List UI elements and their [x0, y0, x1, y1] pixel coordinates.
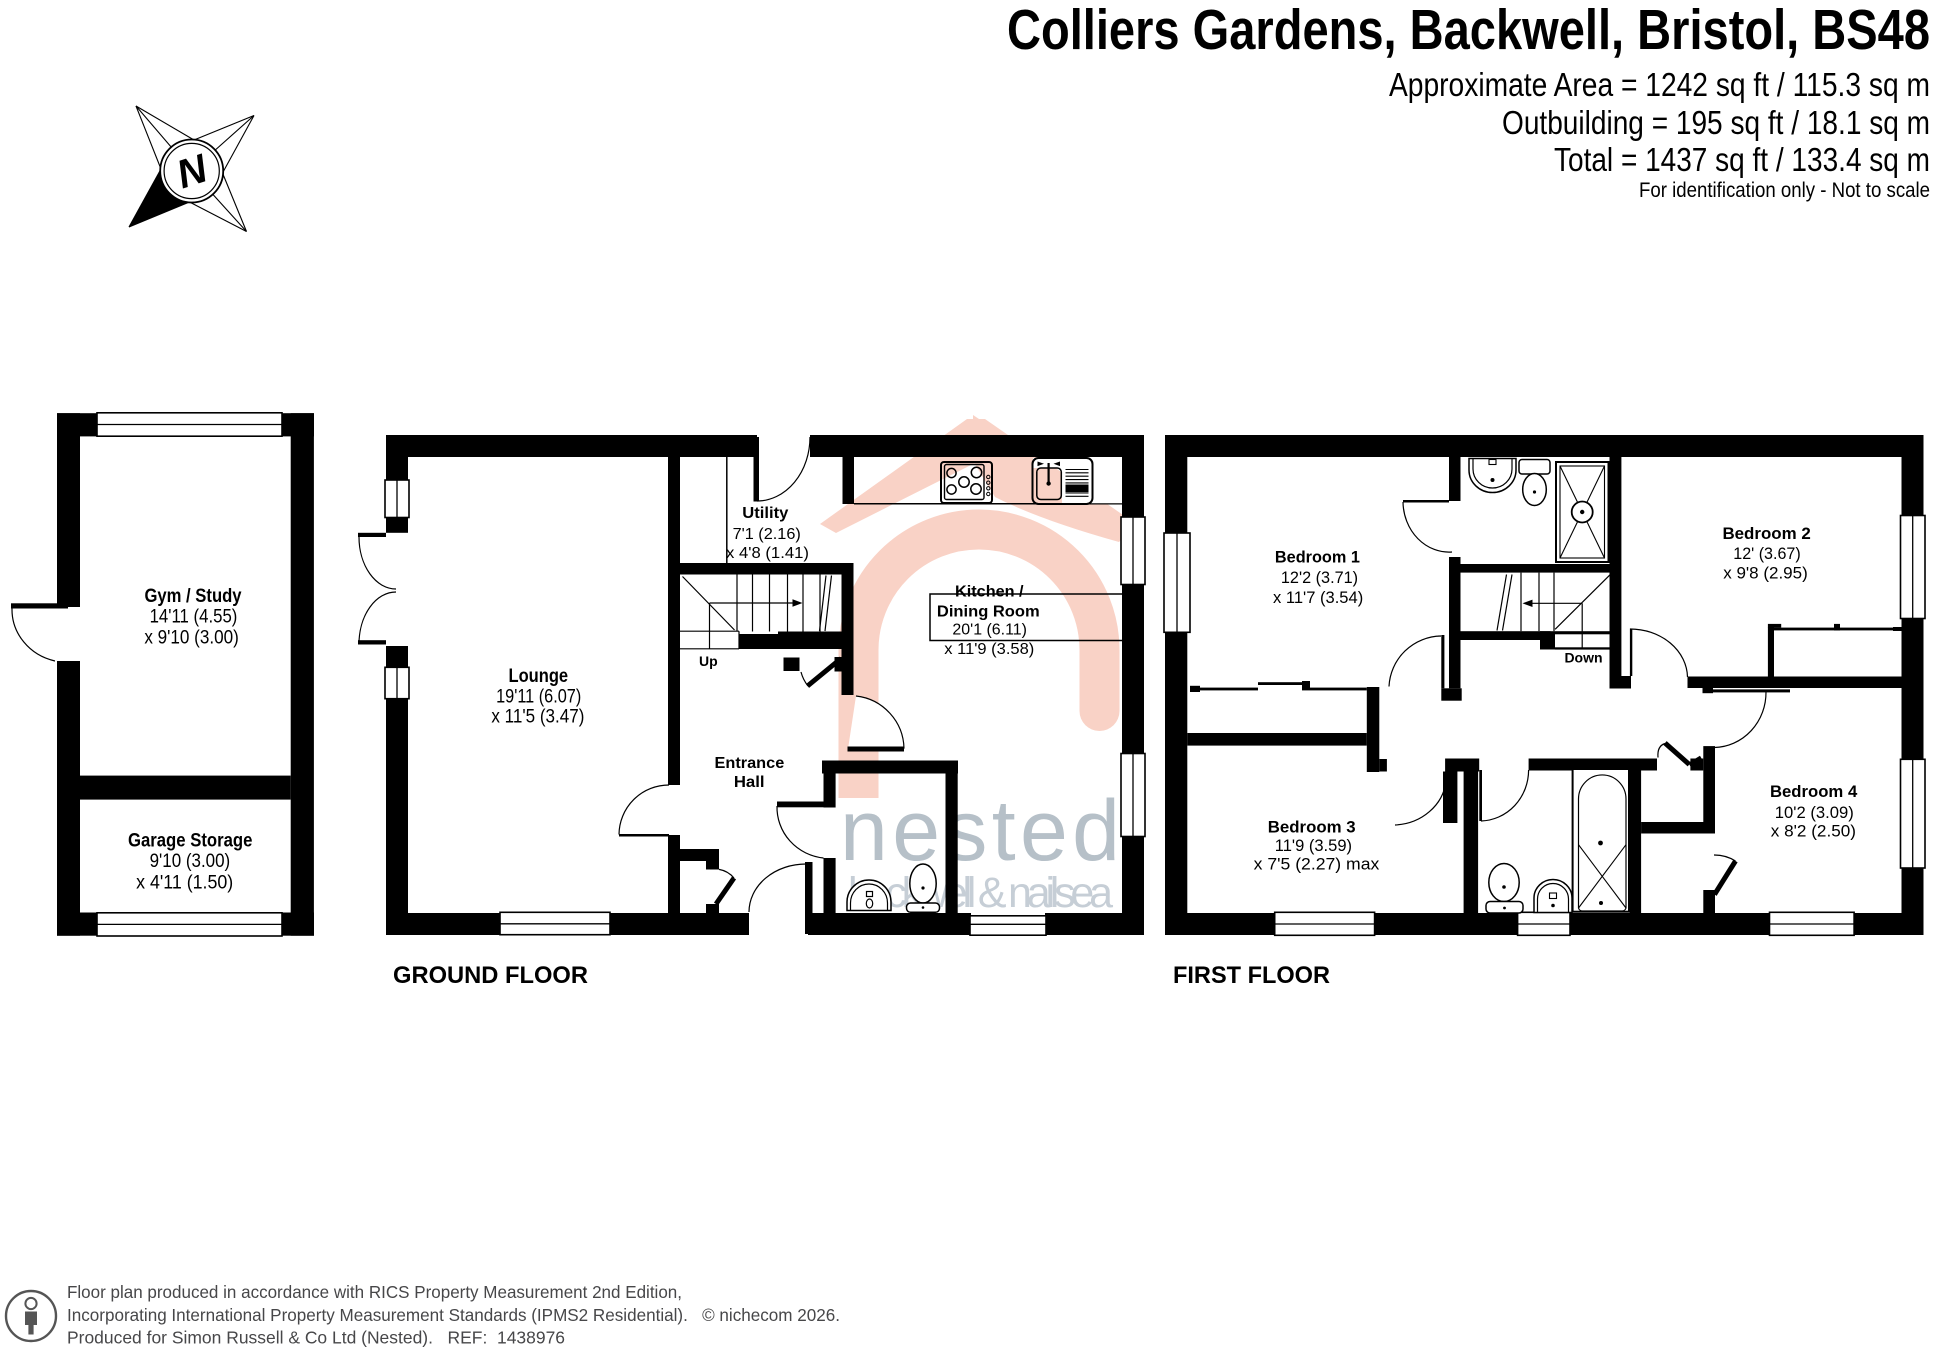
svg-text:Bedroom 3: Bedroom 3 — [1268, 817, 1356, 836]
svg-text:Gym / Study: Gym / Study — [144, 586, 241, 607]
svg-text:Lounge: Lounge — [509, 666, 569, 687]
svg-text:12' (3.67): 12' (3.67) — [1733, 544, 1800, 563]
svg-text:Down: Down — [1564, 649, 1602, 665]
svg-text:x 11'5 (3.47): x 11'5 (3.47) — [491, 706, 584, 727]
svg-text:x 9'8 (2.95): x 9'8 (2.95) — [1723, 564, 1808, 583]
svg-text:x 9'10 (3.00): x 9'10 (3.00) — [144, 627, 239, 648]
svg-text:x 4'11 (1.50): x 4'11 (1.50) — [136, 872, 233, 893]
svg-text:7'1 (2.16): 7'1 (2.16) — [733, 526, 801, 543]
svg-text:Up: Up — [699, 653, 718, 669]
svg-text:Utility: Utility — [742, 505, 788, 522]
svg-text:FIRST FLOOR: FIRST FLOOR — [1173, 962, 1330, 989]
svg-text:Hall: Hall — [734, 774, 765, 791]
svg-text:Kitchen /: Kitchen / — [955, 583, 1024, 600]
svg-text:x 8'2 (2.50): x 8'2 (2.50) — [1771, 822, 1856, 841]
svg-text:x 11'7 (3.54): x 11'7 (3.54) — [1273, 588, 1363, 607]
svg-text:Bedroom 1: Bedroom 1 — [1275, 547, 1360, 566]
svg-text:Bedroom 2: Bedroom 2 — [1722, 524, 1810, 543]
svg-text:Entrance: Entrance — [715, 755, 785, 772]
svg-text:9'10 (3.00): 9'10 (3.00) — [150, 851, 231, 872]
svg-text:10'2 (3.09): 10'2 (3.09) — [1775, 803, 1854, 822]
svg-text:Outbuilding = 195 sq ft / 18.1: Outbuilding = 195 sq ft / 18.1 sq m — [1502, 104, 1930, 141]
svg-text:For identification only - Not: For identification only - Not to scale — [1639, 179, 1930, 202]
svg-text:Dining Room: Dining Room — [937, 603, 1040, 620]
svg-text:14'11 (4.55): 14'11 (4.55) — [150, 607, 238, 628]
svg-text:x 7'5 (2.27) max: x 7'5 (2.27) max — [1254, 855, 1380, 874]
svg-text:Produced for Simon Russell & C: Produced for Simon Russell & Co Ltd (Nes… — [67, 1328, 565, 1348]
svg-text:x 4'8 (1.41): x 4'8 (1.41) — [726, 545, 809, 562]
svg-text:12'2 (3.71): 12'2 (3.71) — [1281, 568, 1358, 587]
svg-text:Floor plan produced in accorda: Floor plan produced in accordance with R… — [67, 1282, 682, 1302]
svg-text:Total = 1437 sq ft / 133.4 sq: Total = 1437 sq ft / 133.4 sq m — [1554, 141, 1930, 178]
svg-text:Colliers Gardens, Backwell, Br: Colliers Gardens, Backwell, Bristol, BS4… — [1007, 0, 1930, 62]
svg-text:Incorporating International Pr: Incorporating International Property Mea… — [67, 1305, 840, 1325]
svg-text:Garage Storage: Garage Storage — [128, 831, 253, 852]
svg-text:11'9 (3.59): 11'9 (3.59) — [1275, 836, 1352, 855]
svg-text:Approximate Area = 1242 sq ft: Approximate Area = 1242 sq ft / 115.3 sq… — [1389, 66, 1930, 103]
svg-text:Bedroom 4: Bedroom 4 — [1770, 782, 1858, 801]
svg-text:nested: nested — [840, 783, 1120, 879]
svg-text:x 11'9 (3.58): x 11'9 (3.58) — [944, 641, 1034, 658]
svg-text:GROUND FLOOR: GROUND FLOOR — [393, 962, 588, 989]
svg-text:19'11 (6.07): 19'11 (6.07) — [496, 686, 581, 707]
svg-text:20'1 (6.11): 20'1 (6.11) — [952, 622, 1027, 639]
